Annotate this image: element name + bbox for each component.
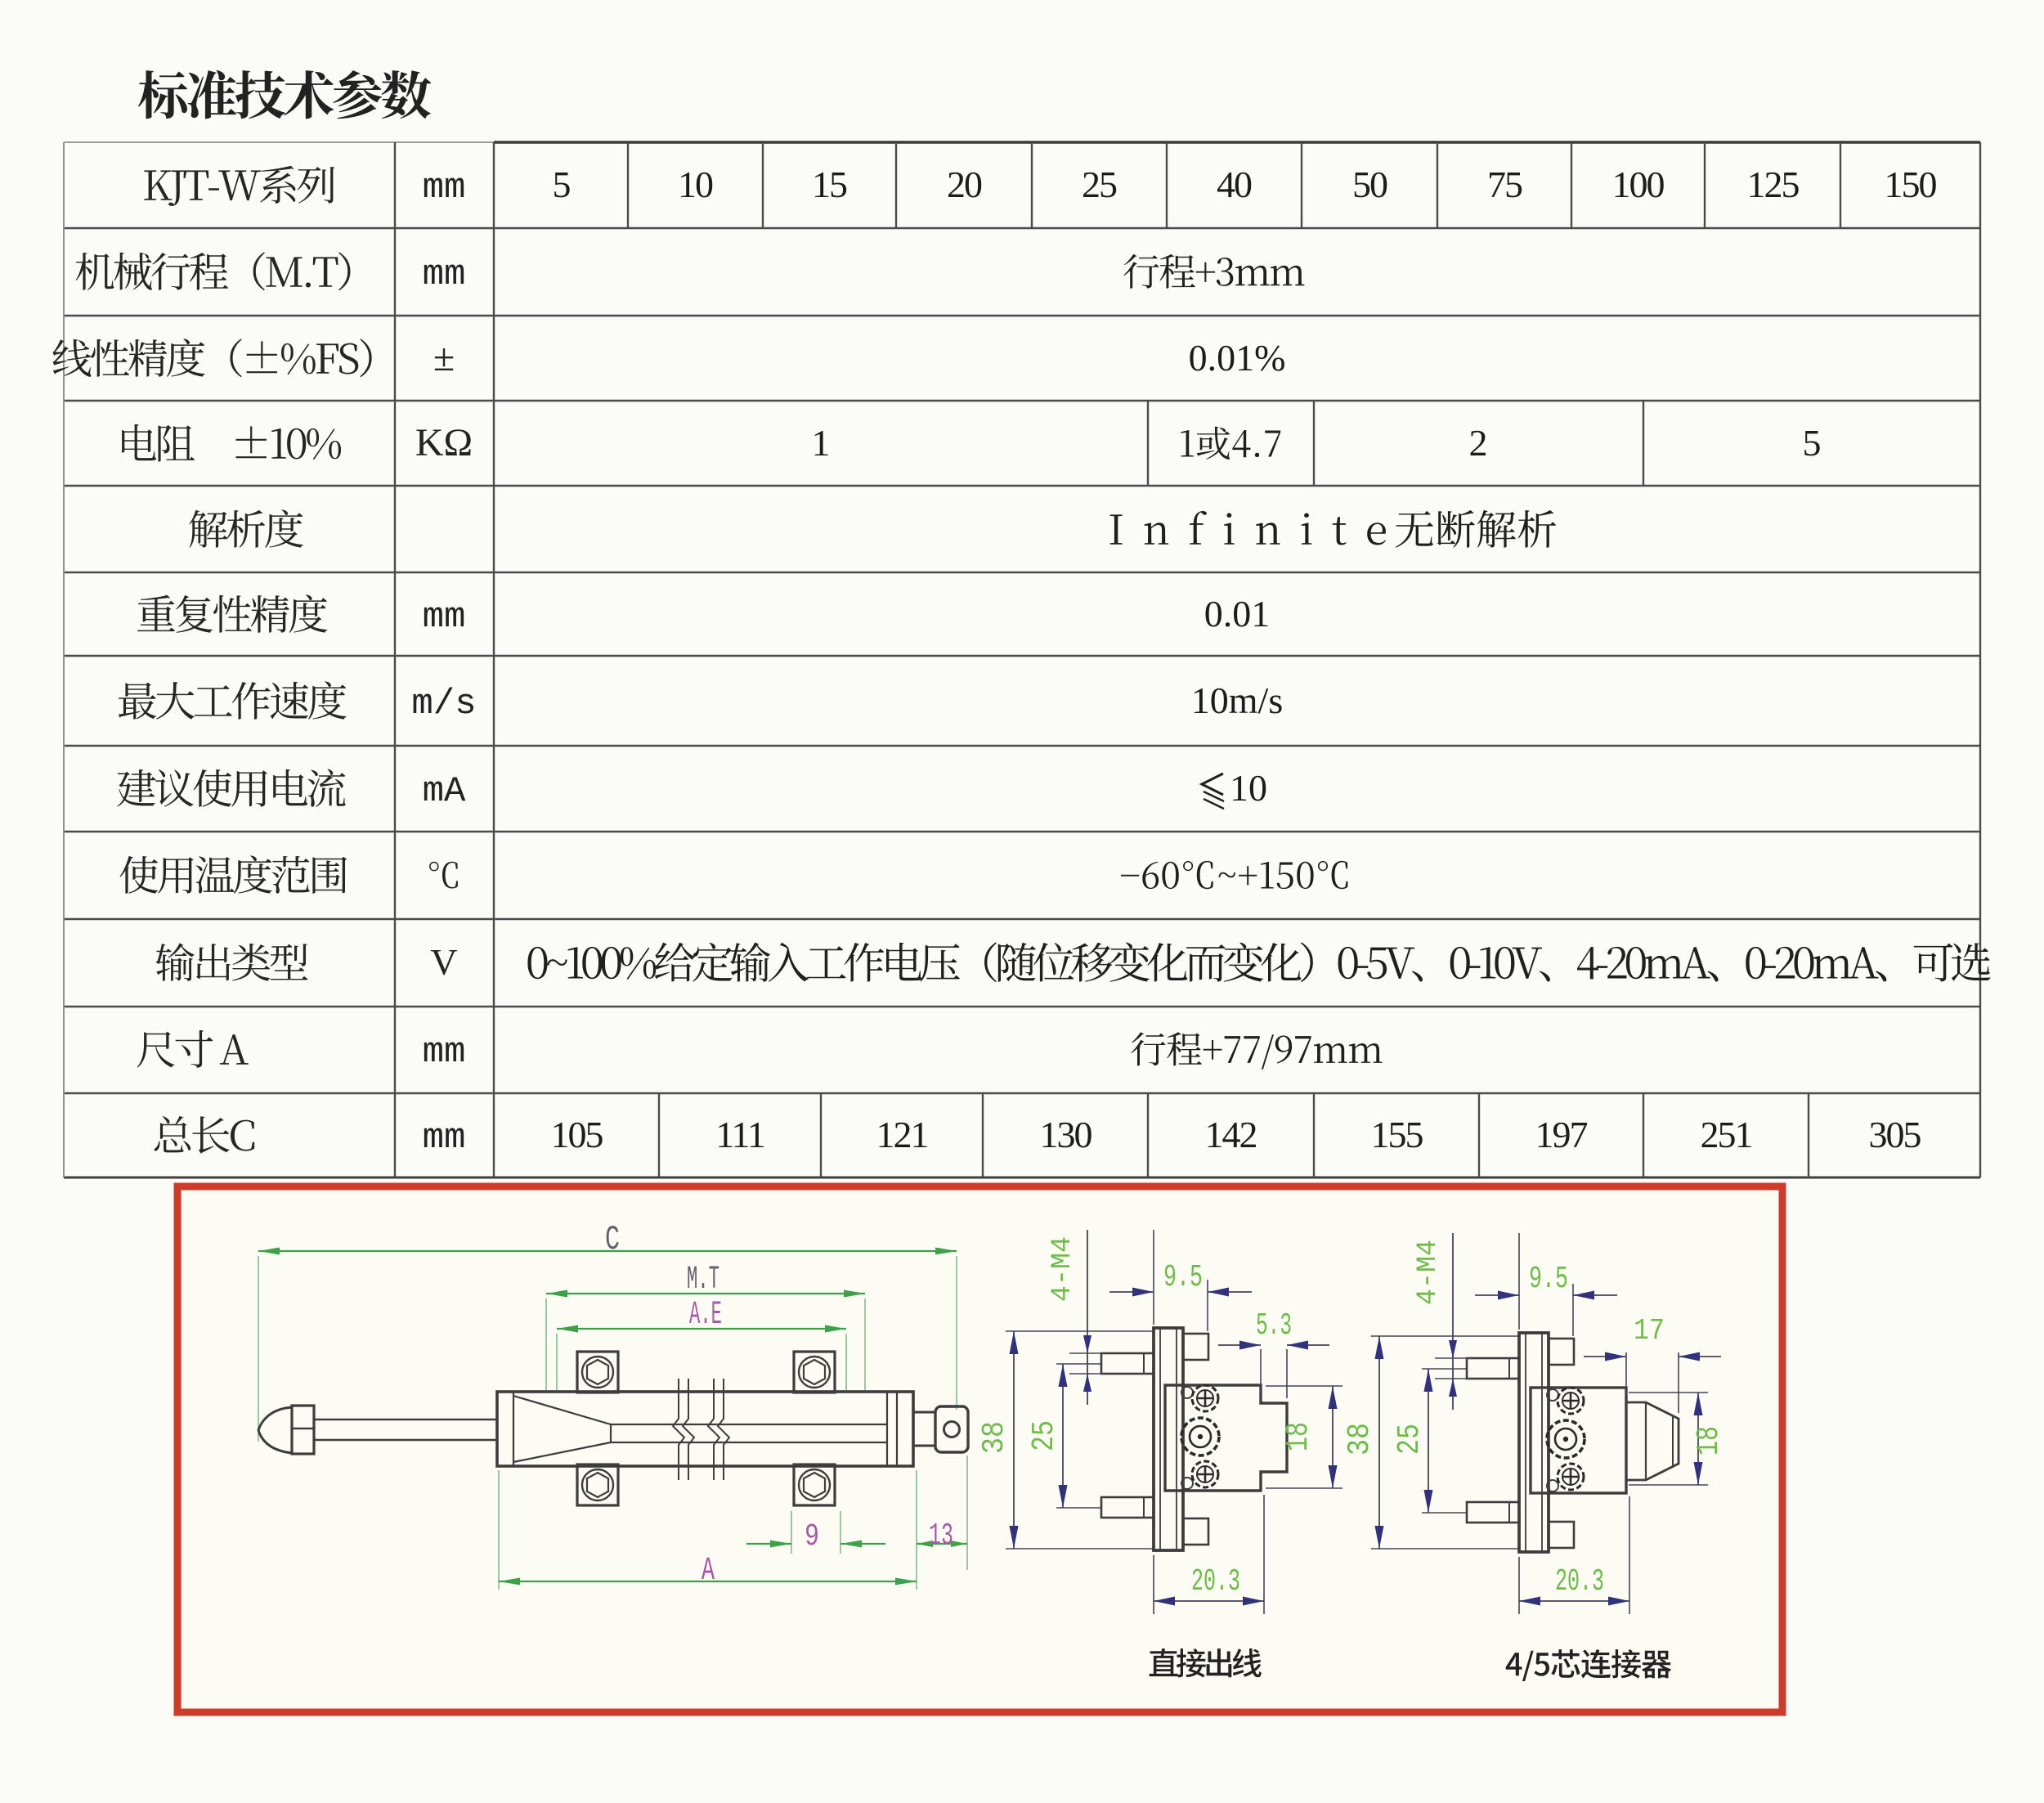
- svg-text:20: 20: [947, 164, 982, 205]
- svg-text:9.5: 9.5: [1529, 1262, 1568, 1297]
- svg-text:305: 305: [1869, 1114, 1921, 1155]
- svg-text:25: 25: [1027, 1420, 1062, 1451]
- svg-text:m/s: m/s: [411, 684, 476, 724]
- svg-text:C: C: [605, 1220, 620, 1259]
- svg-text:15: 15: [812, 164, 847, 205]
- svg-text:20.3: 20.3: [1555, 1564, 1604, 1599]
- svg-text:10m/s: 10m/s: [1191, 679, 1283, 721]
- svg-text:4-M4: 4-M4: [1413, 1240, 1444, 1305]
- svg-text:155: 155: [1371, 1114, 1423, 1155]
- svg-text:38: 38: [977, 1421, 1012, 1454]
- svg-text:13: 13: [929, 1518, 953, 1554]
- svg-text:111: 111: [715, 1114, 764, 1155]
- svg-text:V: V: [430, 941, 457, 983]
- svg-text:100: 100: [1612, 164, 1665, 205]
- svg-text:5: 5: [553, 164, 571, 205]
- svg-text:0.01%: 0.01%: [1189, 337, 1286, 379]
- svg-text:1: 1: [812, 422, 831, 464]
- svg-text:40: 40: [1217, 164, 1252, 205]
- svg-text:±: ±: [433, 336, 455, 379]
- svg-text:M.T: M.T: [687, 1262, 719, 1298]
- svg-text:mm: mm: [423, 1118, 466, 1159]
- svg-text:10: 10: [1230, 767, 1267, 809]
- svg-text:mm: mm: [423, 1032, 466, 1073]
- svg-text:5.3: 5.3: [1256, 1308, 1292, 1343]
- svg-text:A.E: A.E: [689, 1297, 722, 1334]
- svg-text:197: 197: [1535, 1114, 1588, 1155]
- svg-text:251: 251: [1701, 1114, 1752, 1155]
- svg-text:17: 17: [1634, 1314, 1665, 1348]
- svg-text:75: 75: [1487, 164, 1522, 205]
- svg-text:A: A: [702, 1553, 715, 1590]
- svg-text:18: 18: [1692, 1426, 1727, 1455]
- svg-text:105: 105: [551, 1114, 603, 1155]
- svg-text:mm: mm: [423, 597, 466, 638]
- svg-text:10: 10: [678, 164, 713, 205]
- svg-text:38: 38: [1342, 1423, 1378, 1455]
- svg-text:9.5: 9.5: [1163, 1260, 1203, 1295]
- svg-text:KΩ: KΩ: [415, 421, 473, 464]
- svg-text:150: 150: [1885, 164, 1937, 205]
- svg-text:25: 25: [1082, 164, 1117, 205]
- svg-text:125: 125: [1747, 164, 1800, 205]
- svg-text:9: 9: [805, 1519, 819, 1554]
- svg-text:20.3: 20.3: [1191, 1564, 1240, 1599]
- svg-text:130: 130: [1040, 1114, 1092, 1155]
- svg-text:2: 2: [1469, 422, 1488, 464]
- svg-text:0.01: 0.01: [1204, 593, 1271, 635]
- svg-text:18: 18: [1281, 1422, 1316, 1451]
- svg-text:25: 25: [1392, 1424, 1428, 1455]
- svg-text:mm: mm: [423, 254, 466, 295]
- svg-text:5: 5: [1803, 422, 1822, 464]
- svg-text:50: 50: [1352, 164, 1387, 205]
- svg-text:4-M4: 4-M4: [1047, 1236, 1078, 1302]
- svg-text:mA: mA: [423, 771, 466, 812]
- svg-text:142: 142: [1205, 1114, 1257, 1155]
- svg-text:121: 121: [876, 1114, 928, 1155]
- svg-text:mm: mm: [423, 168, 466, 209]
